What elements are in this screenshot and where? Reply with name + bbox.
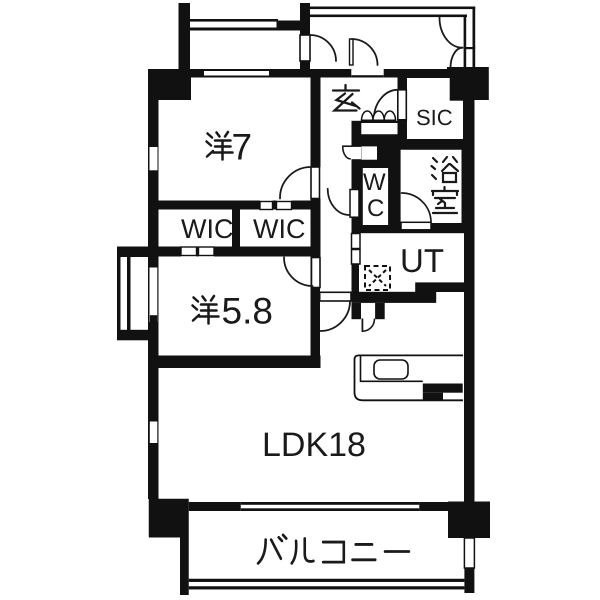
svg-text:C: C: [367, 195, 384, 222]
svg-text:W: W: [363, 169, 386, 196]
svg-text:UT: UT: [400, 242, 444, 279]
svg-text:7: 7: [232, 127, 253, 168]
svg-text:5.8: 5.8: [222, 291, 273, 332]
svg-text:LDK18: LDK18: [262, 426, 366, 464]
svg-text:WIC: WIC: [181, 214, 233, 244]
svg-text:WIC: WIC: [253, 214, 305, 244]
svg-text:SIC: SIC: [416, 105, 453, 130]
